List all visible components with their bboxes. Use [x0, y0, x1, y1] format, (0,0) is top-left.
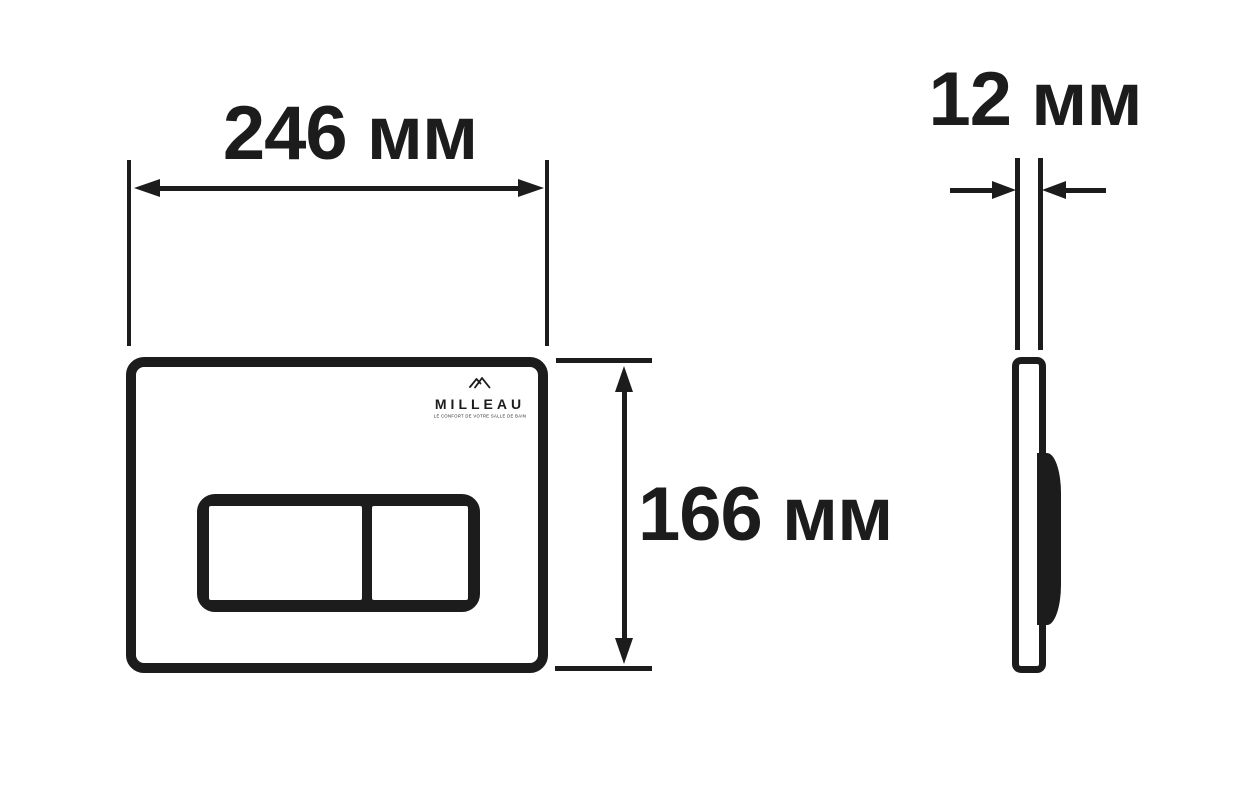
- width-dimension-shaft: [152, 186, 526, 191]
- width-extension-line-right: [545, 160, 549, 346]
- height-dimension-shaft: [622, 386, 627, 644]
- width-dimension-label: 246 мм: [130, 96, 570, 172]
- flush-plate-side-view: [1012, 357, 1046, 673]
- height-extension-line-top: [556, 358, 652, 363]
- arrowhead-inward-left-icon: [1042, 181, 1066, 199]
- technical-drawing-canvas: 246 мм MILLEAU LE CONFORT DE VOTRE SALLE…: [0, 0, 1259, 788]
- arrowhead-inward-right-icon: [992, 181, 1016, 199]
- thickness-dimension-label: 12 мм: [915, 62, 1155, 138]
- arrowhead-down-icon: [615, 638, 633, 664]
- button-divider: [362, 506, 372, 600]
- flush-button-group: [197, 494, 480, 612]
- arrowhead-left-icon: [134, 179, 160, 197]
- brand-logo: MILLEAU LE CONFORT DE VOTRE SALLE DE BAI…: [424, 375, 536, 419]
- full-flush-button[interactable]: [209, 506, 362, 600]
- half-flush-button[interactable]: [372, 506, 468, 600]
- side-view-button-protrusion: [1037, 453, 1061, 625]
- height-dimension-label: 166 мм: [638, 477, 892, 553]
- mountain-icon: [467, 375, 493, 390]
- width-extension-line-left: [127, 160, 131, 346]
- height-extension-line-bottom: [555, 666, 652, 671]
- brand-name: MILLEAU: [424, 396, 536, 412]
- brand-tagline: LE CONFORT DE VOTRE SALLE DE BAIN: [430, 414, 531, 419]
- arrowhead-up-icon: [615, 366, 633, 392]
- arrowhead-right-icon: [518, 179, 544, 197]
- flush-plate-front-view: MILLEAU LE CONFORT DE VOTRE SALLE DE BAI…: [126, 357, 548, 673]
